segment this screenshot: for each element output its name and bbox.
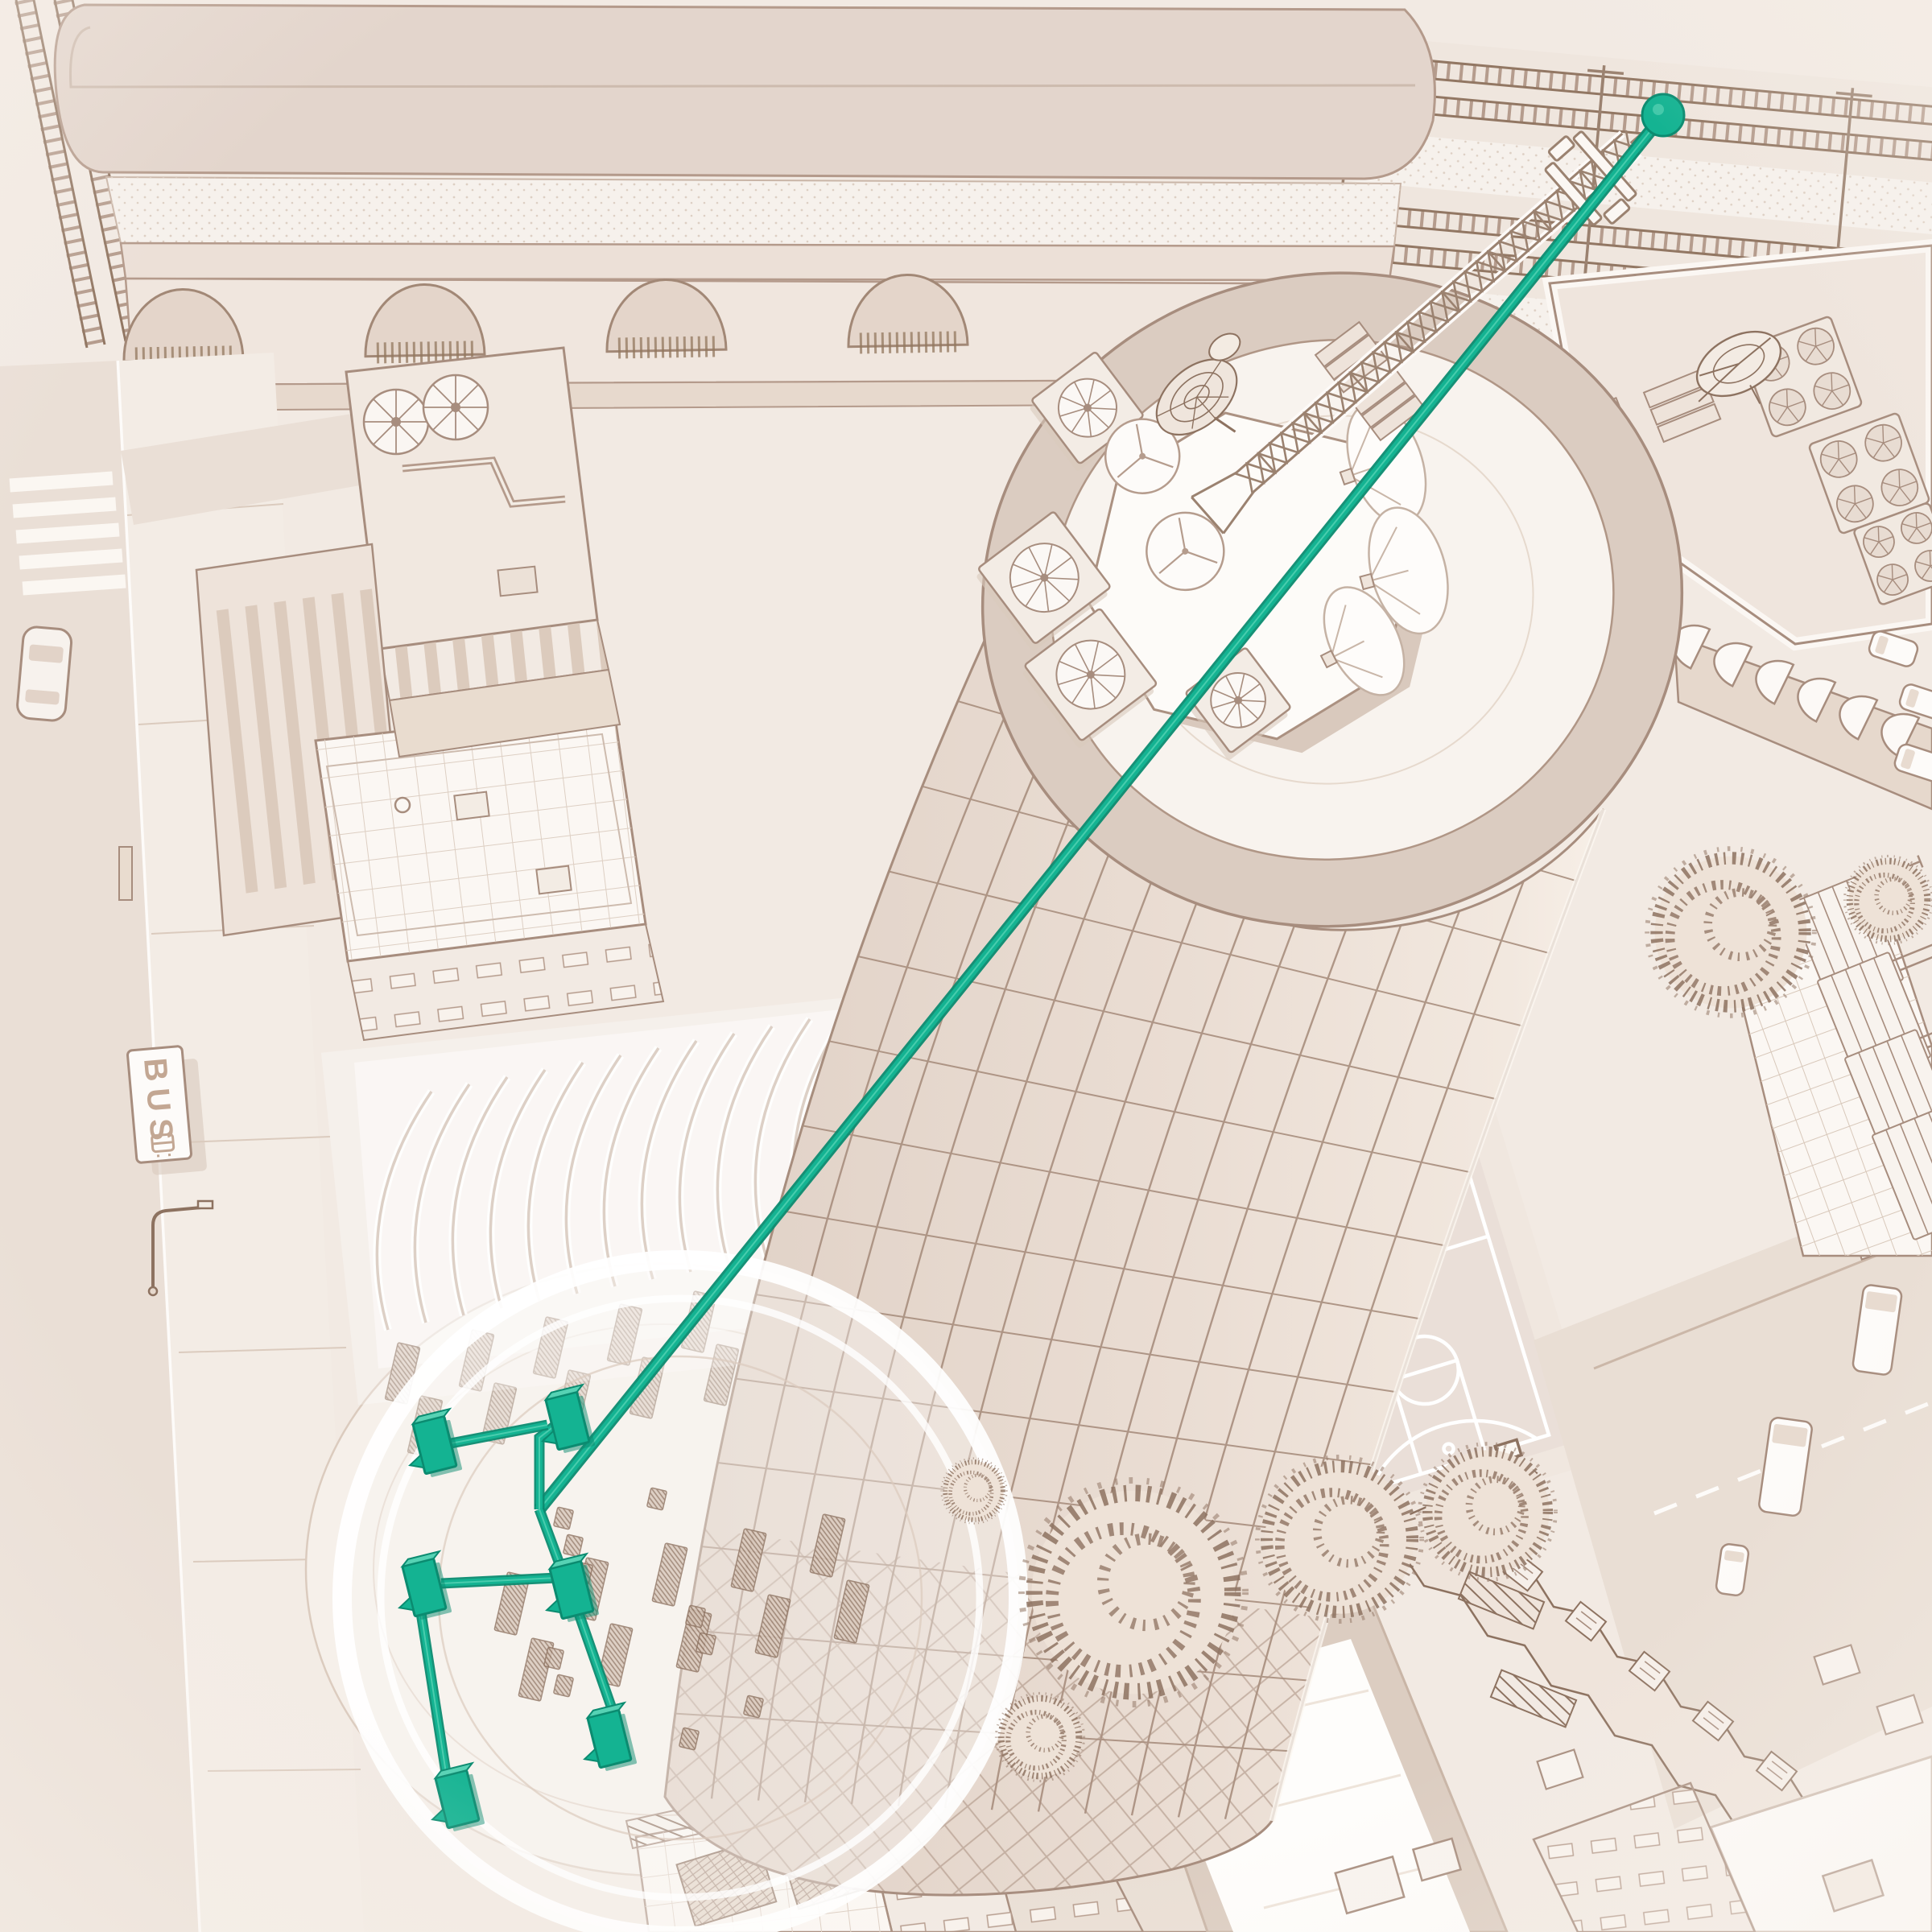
city-illustration: BUS xyxy=(0,0,1932,1932)
vignette xyxy=(0,0,1932,1932)
